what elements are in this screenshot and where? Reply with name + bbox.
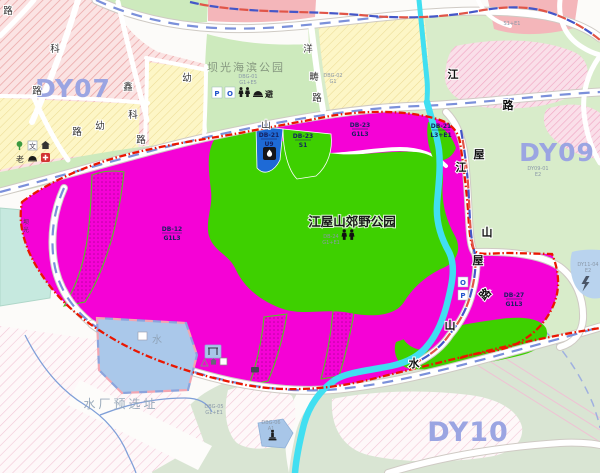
substation-use: E2 <box>585 268 591 274</box>
parcel-east-code: DB-27 <box>504 292 524 299</box>
road-char-6: 幼 <box>95 120 105 132</box>
road-char-10: 畴 <box>309 71 319 83</box>
parcel-l3e1-code: DB-21 <box>431 123 451 130</box>
bus-stop-icon <box>251 367 259 373</box>
dbg02-use: G1 <box>329 79 336 85</box>
dbg05-use: G1+E1 <box>205 410 223 416</box>
country-park-title: 江屋山郊野公园 <box>308 214 396 229</box>
dbg06-use: A1 <box>268 426 275 432</box>
parcel-main-use: G1L3 <box>163 235 180 242</box>
water-plant-title: 水厂预选址 <box>83 397 158 411</box>
road-char-23: 光 <box>23 226 29 234</box>
shelter-label: 避 <box>265 89 273 99</box>
road-char-1: 科 <box>50 43 60 55</box>
road-char-22: 坝 <box>23 218 29 226</box>
lot-icon-label: O <box>227 90 233 98</box>
road-char-17: 山 <box>482 225 493 239</box>
school-icon-label: 文 <box>29 142 36 151</box>
pond-water-label: 水 <box>152 334 162 346</box>
parcel-s1-use: S1 <box>299 142 308 149</box>
road-char-12: 山 <box>261 120 271 131</box>
road-char-9: 洋 <box>303 43 313 55</box>
road-char-8: 幼 <box>182 72 192 84</box>
zoning-map[interactable]: P O 避 文 老 O P DY07 DY09 DY10 江屋山郊野公园 坝光海… <box>0 0 600 473</box>
parcel-s1-code: DB-23 <box>293 133 313 140</box>
road-char-2: 路 <box>32 85 42 97</box>
road-char-5: 路 <box>136 134 146 146</box>
dy09-parcel-use: E2 <box>535 172 541 178</box>
lot2-icon-label: O <box>460 279 466 287</box>
seaside-park-title: 坝光海滨公园 <box>207 60 285 74</box>
road-char-20: 山 <box>445 318 456 332</box>
parcel-g1l3-use: G1L3 <box>351 131 368 138</box>
parking2-icon-label: P <box>460 292 465 300</box>
yellow-parcel-ne <box>318 16 429 110</box>
parcel-u9-use: U9 <box>264 141 273 148</box>
road-char-3: 鑫 <box>123 81 133 93</box>
road-char-18: 屋 <box>473 254 484 267</box>
road-char-21: 水 <box>409 356 421 370</box>
elderly-icon-label: 老 <box>16 154 24 164</box>
small-box-icon <box>220 358 227 365</box>
road-char-11: 路 <box>312 92 322 104</box>
region-label-dy07: DY07 <box>35 74 111 103</box>
region-label-dy10: DY10 <box>427 417 509 448</box>
road-char-13: 江 <box>448 67 459 81</box>
parcel-g1l3-code: DB-23 <box>350 122 370 129</box>
parcel-u9-code: DB-21 <box>259 132 279 139</box>
ne-parcel-code: S1+E1 <box>504 21 521 27</box>
road-char-0: 路 <box>3 5 13 17</box>
region-label-dy09: DY09 <box>519 138 595 167</box>
parcel-main-code: DB-12 <box>162 226 182 233</box>
parcel-l3e1-use: L3+E1 <box>430 132 451 139</box>
road-char-16: 江 <box>456 160 467 174</box>
seaside-use: G1+E5 <box>239 80 257 86</box>
park-use: G1+E1 <box>322 240 340 246</box>
planning-map-canvas[interactable]: P O 避 文 老 O P DY07 DY09 DY10 江屋山郊野公园 坝光海… <box>0 0 600 473</box>
parcel-small-blue <box>205 345 221 358</box>
road-char-4: 科 <box>128 109 138 121</box>
parking-icon-label: P <box>214 90 219 98</box>
road-char-14: 路 <box>503 98 515 112</box>
parcel-east-use: G1L3 <box>505 301 522 308</box>
pond-marker-icon <box>138 332 147 340</box>
road-char-15: 屋 <box>474 148 485 161</box>
road-char-7: 路 <box>72 126 82 138</box>
gas-station-icon <box>263 147 276 160</box>
